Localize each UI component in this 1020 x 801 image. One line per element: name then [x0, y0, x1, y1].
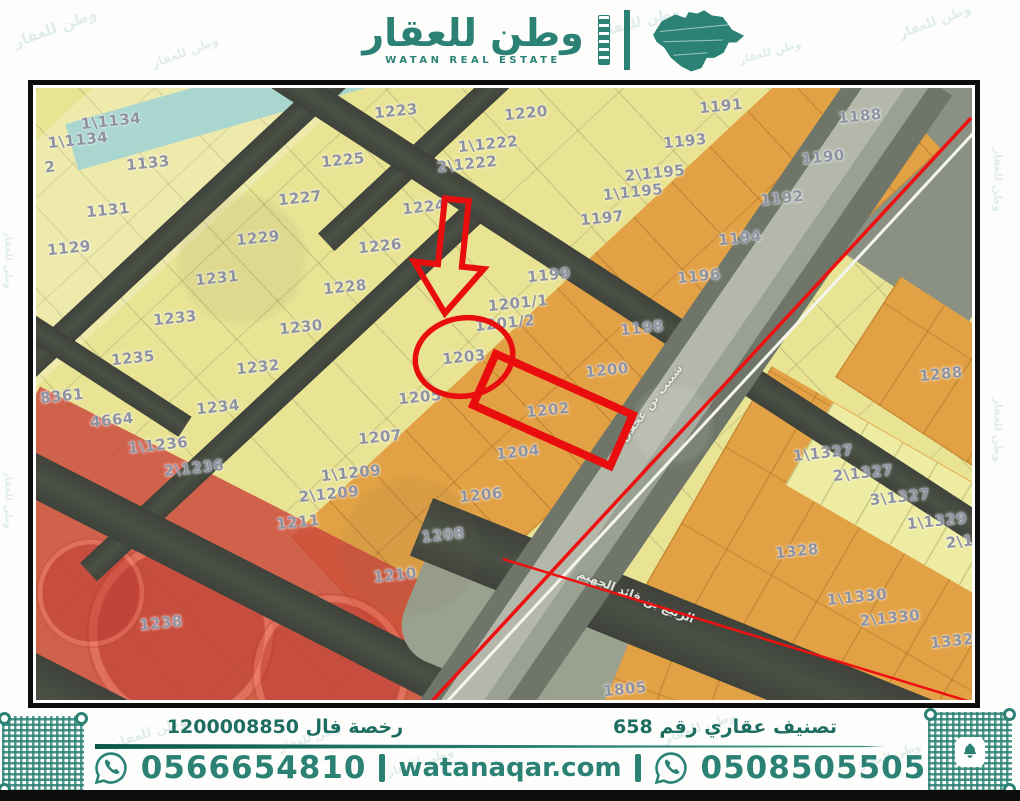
parcel-map: 1\11341\11342113311311129836146641223122…: [36, 88, 972, 700]
brand-watermark: وطن للعقار: [3, 231, 14, 289]
brand-name-english: WATAN REAL ESTATE: [362, 55, 584, 66]
map-frame: 1\11341\11342113311311129836146641223122…: [28, 80, 980, 708]
brand-logo: وطن للعقار WATAN REAL ESTATE: [362, 6, 754, 74]
separator-bar: [379, 754, 385, 782]
classification-text: تصنيف عقاري رقم 658: [575, 716, 875, 738]
street-name-label: شبيب بن عجلان: [616, 362, 685, 445]
license-text: رخصة فال 1200008850: [120, 716, 450, 738]
footer: رخصة فال 1200008850 تصنيف عقاري رقم 658 …: [0, 708, 1020, 792]
saudi-map-icon: [644, 6, 754, 74]
divider-swoosh: [95, 744, 885, 749]
header: وطن للعقار WATAN REAL ESTATE: [0, 0, 1020, 80]
brand-watermark: وطن للعقار: [992, 398, 1005, 462]
separator-bar: [635, 754, 641, 782]
whatsapp-icon: [654, 751, 688, 785]
qr-finder-dot: [924, 708, 937, 721]
phone-number-right: 0508505505: [701, 750, 927, 786]
brand-name-arabic: وطن للعقار: [362, 14, 584, 54]
qr-finder-dot: [0, 712, 11, 725]
qr-finder-dot: [1003, 708, 1016, 721]
ruler-icon: [598, 15, 610, 65]
bottom-black-bar: [0, 790, 1020, 801]
logo-divider: [624, 10, 630, 70]
brand-watermark: وطن للعقار: [992, 148, 1005, 212]
brand-watermark: وطن للعقار: [3, 471, 14, 529]
phone-number-left: 0566654810: [141, 750, 367, 786]
real-estate-flyer: وطن للعقاروطن للعقاروطن للعقاروطن للعقار…: [0, 0, 1020, 801]
contact-row: 0566654810 watanaqar.com 0508505505: [0, 750, 1020, 786]
brand-text: وطن للعقار WATAN REAL ESTATE: [362, 14, 584, 67]
whatsapp-icon: [94, 751, 128, 785]
street-name-label: الربيع بن قائد الجهيم: [576, 566, 697, 626]
website-text: watanaqar.com: [398, 753, 621, 783]
qr-finder-dot: [75, 712, 88, 725]
qr-code-right: [928, 712, 1012, 792]
street-labels-layer: شبيب بن عجلانالربيع بن قائد الجهيم: [36, 88, 972, 700]
bell-icon: [955, 737, 985, 767]
